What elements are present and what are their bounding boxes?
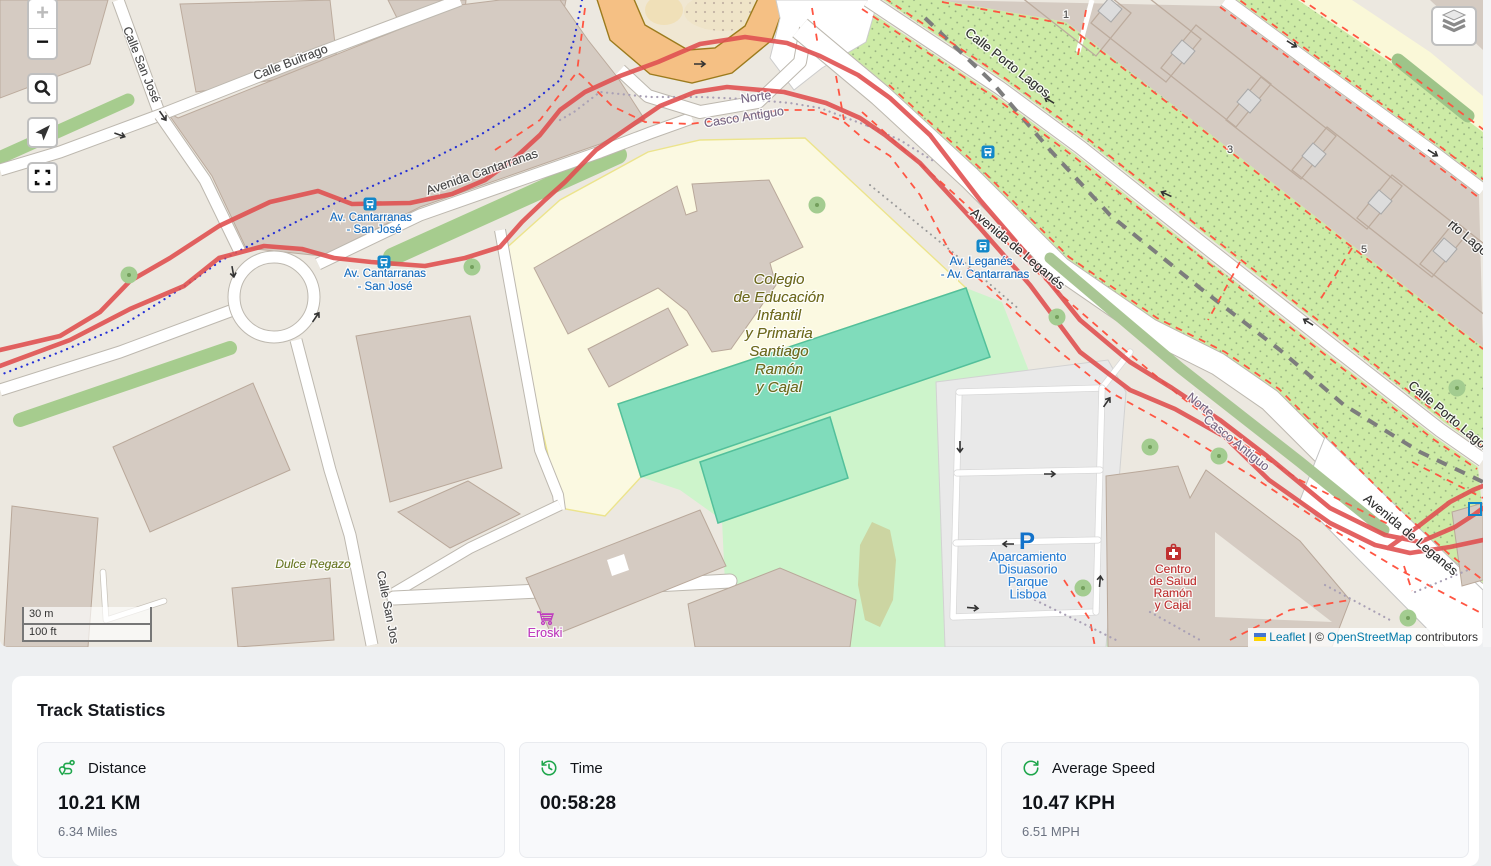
- svg-text:de Educación: de Educación: [734, 289, 825, 306]
- svg-text:- Av. Cantarranas: - Av. Cantarranas: [941, 269, 1030, 281]
- svg-text:Eroski: Eroski: [528, 626, 563, 640]
- svg-text:Santiago: Santiago: [749, 343, 808, 360]
- svg-text:- San José: - San José: [347, 224, 402, 236]
- svg-text:Av. Cantarranas: Av. Cantarranas: [344, 268, 426, 280]
- svg-text:5: 5: [1361, 244, 1367, 256]
- svg-text:- San José: - San José: [358, 281, 413, 293]
- svg-text:Lisboa: Lisboa: [1010, 588, 1047, 602]
- svg-text:y Cajal: y Cajal: [1155, 598, 1192, 612]
- svg-text:y Cajal: y Cajal: [755, 379, 803, 396]
- svg-text:Ramón: Ramón: [755, 361, 803, 378]
- svg-text:1: 1: [1063, 9, 1069, 21]
- svg-text:Av. Leganés: Av. Leganés: [950, 256, 1013, 268]
- svg-text:y Primaria: y Primaria: [744, 325, 813, 342]
- svg-text:Colegio: Colegio: [754, 271, 805, 288]
- svg-text:Dulce Regazo: Dulce Regazo: [275, 557, 351, 571]
- svg-text:Infantil: Infantil: [757, 307, 802, 324]
- svg-text:3: 3: [1227, 144, 1233, 156]
- svg-text:Av. Cantarranas: Av. Cantarranas: [330, 212, 412, 224]
